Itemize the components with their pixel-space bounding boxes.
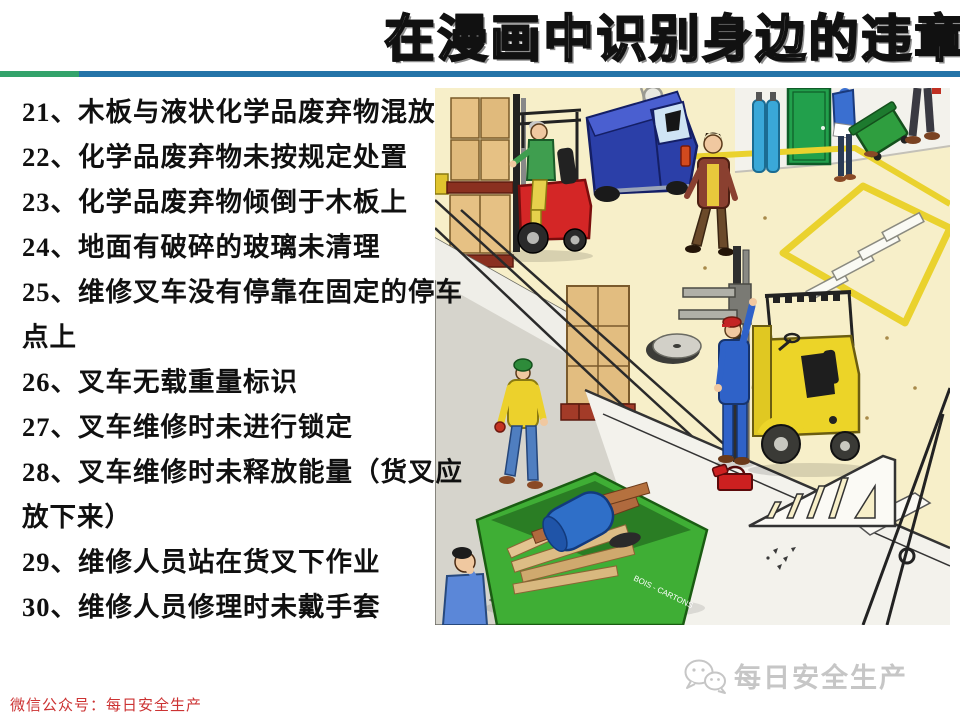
- violation-item: 27、叉车维修时未进行锁定: [22, 405, 474, 450]
- divider-green-segment: [0, 71, 79, 77]
- wechat-logo-icon: [682, 657, 728, 695]
- brand-watermark-text: 每日安全生产: [734, 656, 908, 695]
- violation-item: 22、化学品废弃物未按规定处置: [22, 135, 474, 180]
- page-title: 在漫画中识别身边的违章: [385, 0, 960, 71]
- brand-watermark: 每日安全生产: [682, 656, 908, 695]
- violation-item: 26、叉车无载重量标识: [22, 360, 474, 405]
- title-banner: 在漫画中识别身边的违章: [398, 0, 954, 70]
- wechat-account-label: 微信公众号：每日安全生产: [10, 694, 202, 715]
- violation-item: 24、地面有破碎的玻璃未清理: [22, 225, 474, 270]
- violation-item: 21、木板与液状化学品废弃物混放: [22, 90, 474, 135]
- violation-item: 28、叉车维修时未释放能量（货叉应放下来）: [22, 450, 474, 540]
- title-divider: [0, 71, 960, 77]
- violation-item: 29、维修人员站在货叉下作业: [22, 540, 474, 585]
- divider-blue-segment: [79, 71, 960, 77]
- violation-item: 30、维修人员修理时未戴手套: [22, 585, 474, 630]
- violation-item: 23、化学品废弃物倾倒于木板上: [22, 180, 474, 225]
- violation-item: 25、维修叉车没有停靠在固定的停车点上: [22, 270, 474, 360]
- violation-list: 21、木板与液状化学品废弃物混放 22、化学品废弃物未按规定处置 23、化学品废…: [22, 90, 474, 630]
- warehouse-cartoon: BOIS - CARTONS: [435, 88, 950, 625]
